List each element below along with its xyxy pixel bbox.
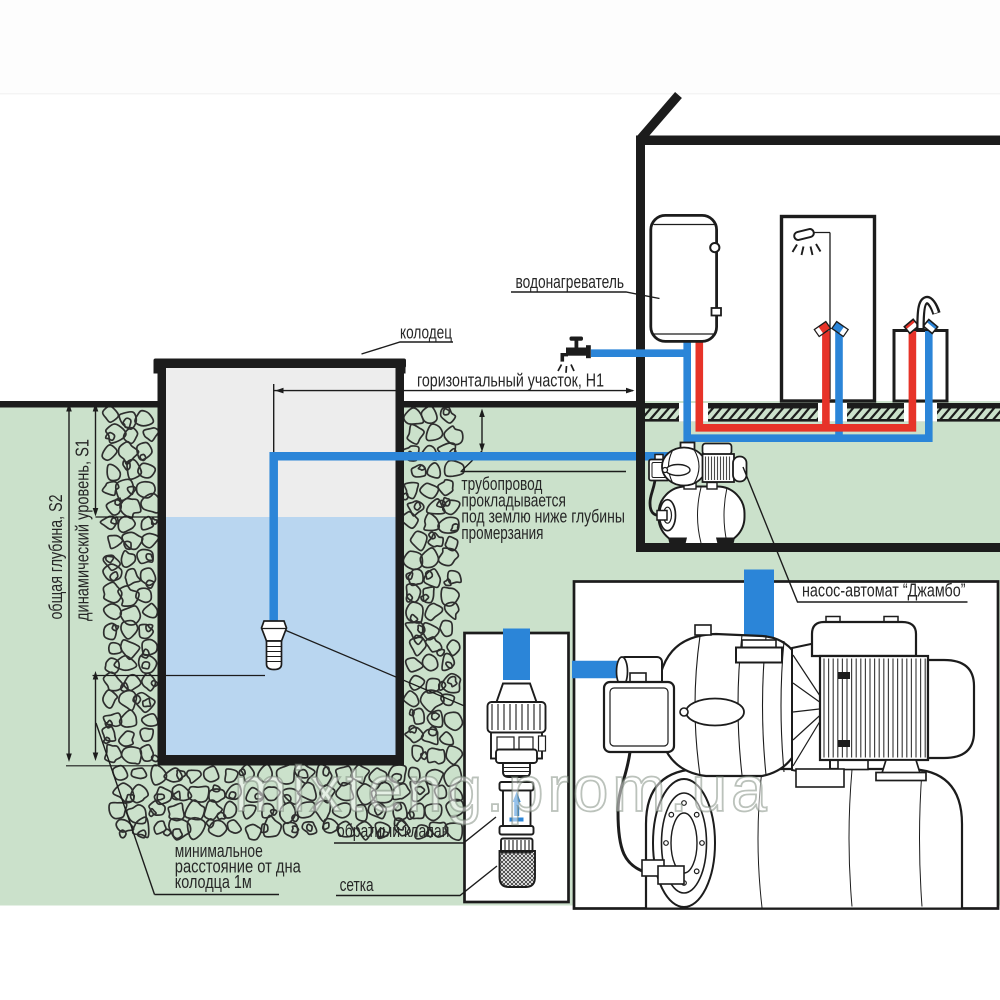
svg-text:колодец: колодец xyxy=(400,323,452,343)
svg-text:колодца 1м: колодца 1м xyxy=(175,872,252,892)
svg-text:водонагреватель: водонагреватель xyxy=(516,272,625,292)
svg-text:mixteng.prom.ua: mixteng.prom.ua xyxy=(234,753,771,825)
svg-text:сетка: сетка xyxy=(340,875,375,895)
svg-text:горизонтальный участок, Н1: горизонтальный участок, Н1 xyxy=(417,371,604,391)
svg-text:насос-автомат “Джамбо”: насос-автомат “Джамбо” xyxy=(802,581,966,601)
svg-text:общая глубина, S2: общая глубина, S2 xyxy=(46,495,66,620)
svg-text:динамический уровень, S1: динамический уровень, S1 xyxy=(73,439,93,621)
svg-text:промерзания: промерзания xyxy=(461,523,543,543)
